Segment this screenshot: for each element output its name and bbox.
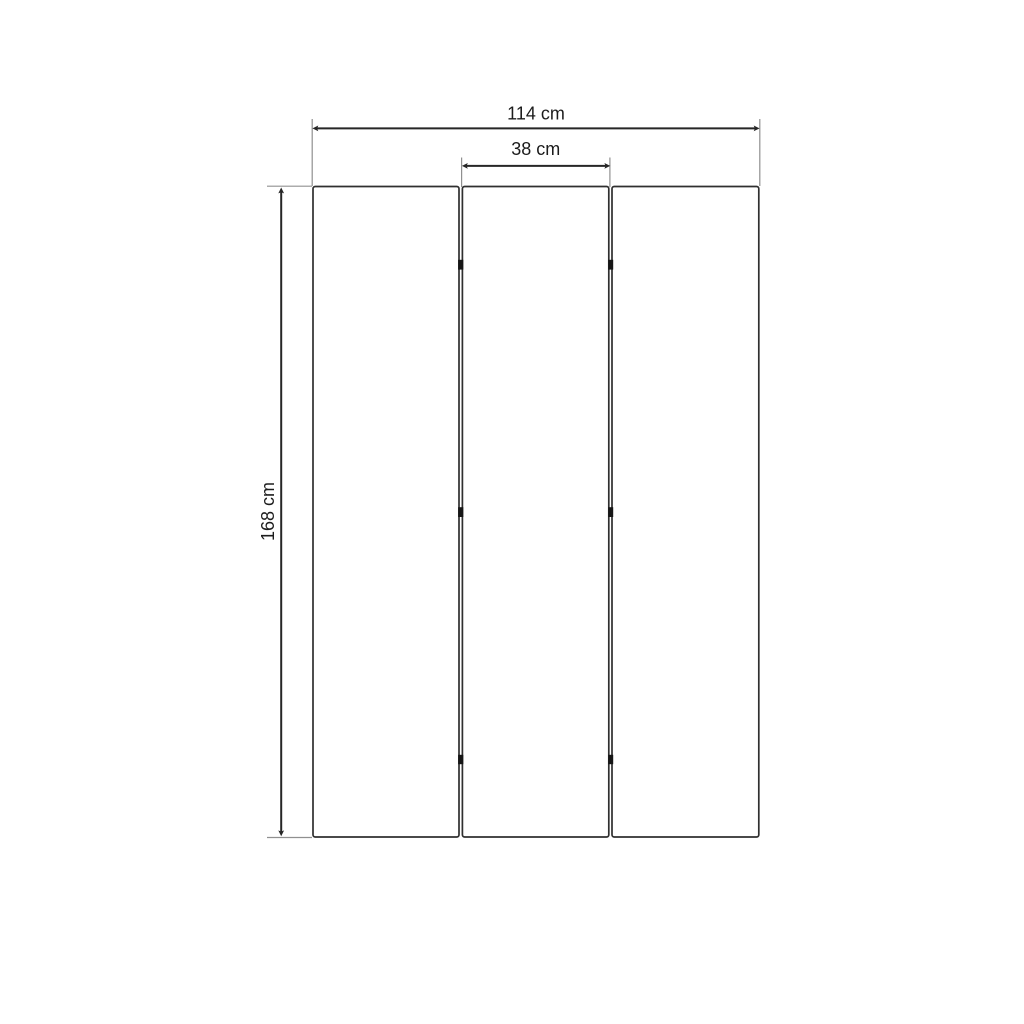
- svg-text:38 cm: 38 cm: [511, 139, 560, 159]
- svg-text:114 cm: 114 cm: [507, 103, 565, 123]
- svg-text:168 cm: 168 cm: [258, 482, 278, 541]
